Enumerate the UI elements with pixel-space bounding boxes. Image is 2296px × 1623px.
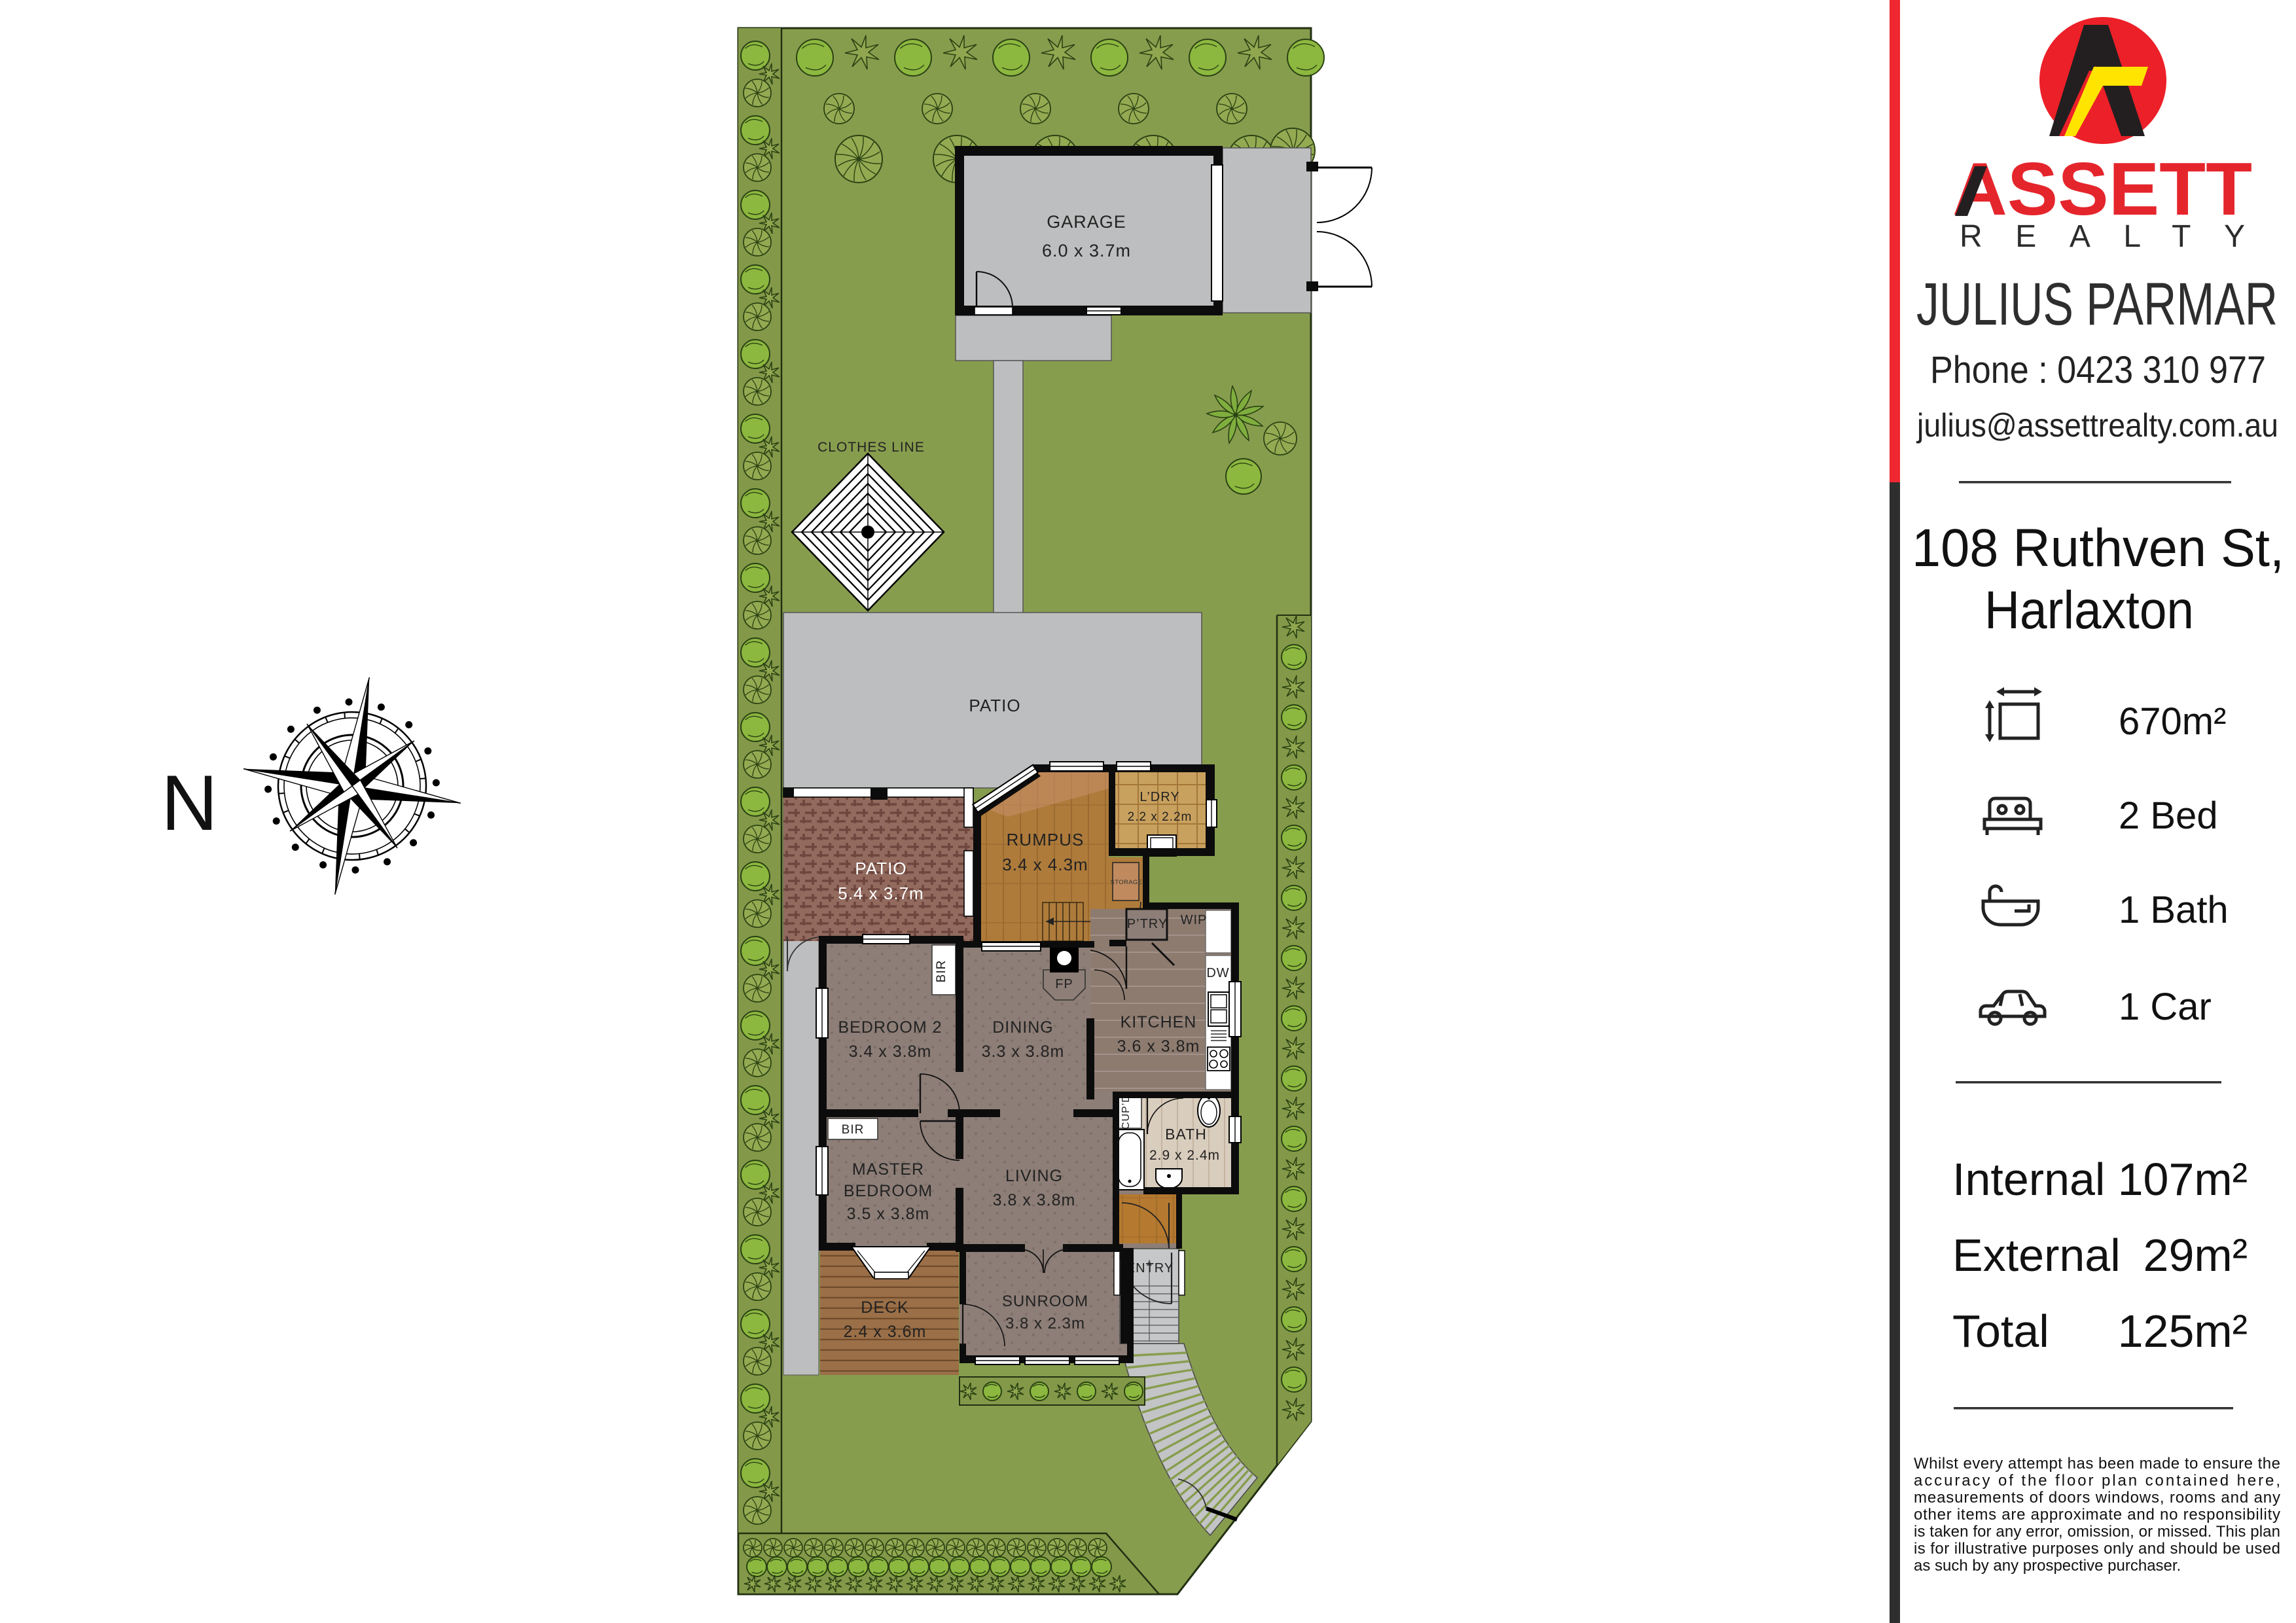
svg-text:L’DRY: L’DRY bbox=[1139, 790, 1179, 804]
svg-text:LIVING: LIVING bbox=[1005, 1167, 1063, 1185]
svg-text:FP: FP bbox=[1055, 977, 1073, 991]
svg-text:GARAGE: GARAGE bbox=[1047, 212, 1126, 232]
svg-text:BEDROOM: BEDROOM bbox=[844, 1182, 933, 1200]
svg-text:BATH: BATH bbox=[1165, 1126, 1207, 1143]
svg-text:3.6 x 3.8m: 3.6 x 3.8m bbox=[1117, 1037, 1200, 1056]
svg-text:670m²: 670m² bbox=[2119, 700, 2226, 743]
svg-text:DW: DW bbox=[1206, 966, 1229, 980]
svg-text:29m²: 29m² bbox=[2144, 1230, 2248, 1281]
svg-text:BIR: BIR bbox=[935, 960, 948, 983]
svg-text:measurements of doors windows,: measurements of doors windows, rooms and… bbox=[1914, 1489, 2280, 1507]
svg-text:PATIO: PATIO bbox=[855, 859, 906, 878]
svg-text:1 Car: 1 Car bbox=[2119, 986, 2212, 1028]
svg-text:3.5 x 3.8m: 3.5 x 3.8m bbox=[847, 1205, 930, 1223]
svg-text:External: External bbox=[1952, 1230, 2121, 1281]
svg-text:CUP’D: CUP’D bbox=[1121, 1094, 1132, 1130]
svg-text:RUMPUS: RUMPUS bbox=[1007, 830, 1085, 849]
svg-text:Total: Total bbox=[1952, 1306, 2049, 1357]
svg-text:6.0 x 3.7m: 6.0 x 3.7m bbox=[1042, 241, 1131, 260]
svg-text:3.4 x 3.8m: 3.4 x 3.8m bbox=[849, 1043, 932, 1061]
svg-text:P’TRY: P’TRY bbox=[1127, 917, 1168, 931]
svg-text:108 Ruthven St,: 108 Ruthven St, bbox=[1912, 518, 2284, 578]
svg-text:125m²: 125m² bbox=[2118, 1306, 2248, 1357]
svg-text:3.8 x 2.3m: 3.8 x 2.3m bbox=[1005, 1315, 1085, 1332]
svg-text:ASSETT: ASSETT bbox=[1952, 148, 2252, 231]
svg-text:3.4 x 4.3m: 3.4 x 4.3m bbox=[1002, 855, 1088, 874]
svg-text:JULIUS PARMAR: JULIUS PARMAR bbox=[1916, 271, 2278, 338]
svg-text:2.9 x 2.4m: 2.9 x 2.4m bbox=[1149, 1148, 1220, 1163]
svg-text:2.2 x 2.2m: 2.2 x 2.2m bbox=[1128, 810, 1193, 824]
svg-text:3.8 x 3.8m: 3.8 x 3.8m bbox=[993, 1191, 1076, 1209]
svg-text:PATIO: PATIO bbox=[969, 696, 1020, 715]
svg-text:N: N bbox=[161, 759, 219, 847]
svg-text:julius@assettrealty.com.au: julius@assettrealty.com.au bbox=[1916, 407, 2278, 444]
svg-text:2 Bed: 2 Bed bbox=[2119, 794, 2218, 837]
svg-text:Internal: Internal bbox=[1952, 1154, 2105, 1205]
svg-text:BIR: BIR bbox=[842, 1123, 865, 1137]
svg-text:WIP: WIP bbox=[1181, 913, 1208, 927]
svg-text:1 Bath: 1 Bath bbox=[2119, 889, 2229, 931]
svg-text:Harlaxton: Harlaxton bbox=[1984, 580, 2194, 640]
svg-text:2.4 x 3.6m: 2.4 x 3.6m bbox=[844, 1323, 927, 1341]
svg-text:STORAGE: STORAGE bbox=[1110, 879, 1142, 886]
svg-text:accuracy of the floor plan con: accuracy of the floor plan contained her… bbox=[1914, 1472, 2280, 1489]
svg-text:5.4 x 3.7m: 5.4 x 3.7m bbox=[838, 883, 924, 903]
svg-text:MASTER: MASTER bbox=[852, 1160, 924, 1179]
svg-text:BEDROOM 2: BEDROOM 2 bbox=[838, 1018, 942, 1037]
svg-text:DINING: DINING bbox=[992, 1018, 1054, 1037]
svg-text:Whilst every attempt has been: Whilst every attempt has been made to en… bbox=[1914, 1455, 2280, 1472]
svg-text:KITCHEN: KITCHEN bbox=[1121, 1013, 1197, 1031]
svg-text:is for illustrative purposes o: is for illustrative purposes only and sh… bbox=[1914, 1540, 2280, 1558]
svg-text:3.3 x 3.8m: 3.3 x 3.8m bbox=[982, 1043, 1065, 1061]
svg-text:as such by any prospective pur: as such by any prospective purchaser. bbox=[1914, 1557, 2181, 1575]
svg-text:Phone : 0423 310 977: Phone : 0423 310 977 bbox=[1930, 349, 2266, 391]
svg-text:SUNROOM: SUNROOM bbox=[1002, 1293, 1088, 1310]
svg-text:CLOTHES LINE: CLOTHES LINE bbox=[817, 440, 925, 455]
svg-text:other items are approximate an: other items are approximate and no respo… bbox=[1914, 1506, 2280, 1524]
svg-text:is taken for any error, omissi: is taken for any error, omission, or mis… bbox=[1914, 1523, 2280, 1541]
svg-text:107m²: 107m² bbox=[2118, 1154, 2248, 1205]
svg-text:DECK: DECK bbox=[861, 1298, 908, 1317]
